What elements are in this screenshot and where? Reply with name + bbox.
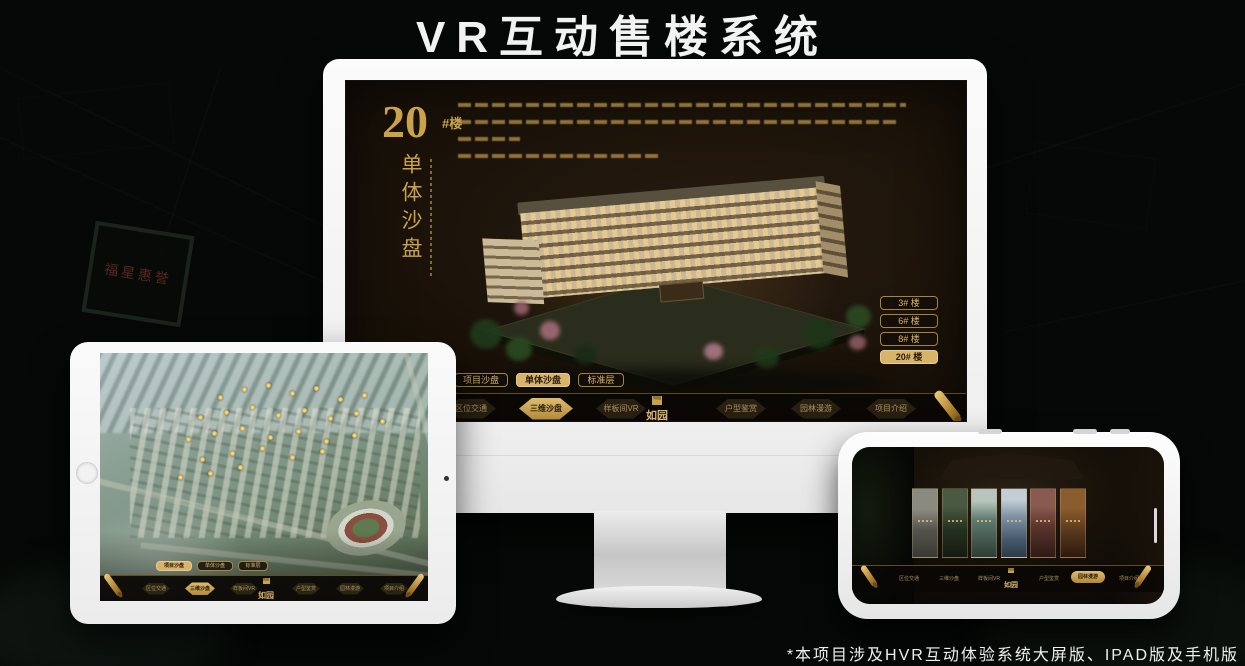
- scene-panel[interactable]: [971, 488, 997, 558]
- building-badge-dot: [290, 391, 295, 396]
- building-badge-dot: [268, 435, 273, 440]
- volume-button[interactable]: [978, 429, 1002, 434]
- building-badge-dot: [296, 429, 301, 434]
- scroll-icon[interactable]: [103, 573, 123, 598]
- tree: [704, 343, 723, 360]
- brand-seal-icon: 如园: [652, 396, 662, 405]
- building-badge-dot: [212, 431, 217, 436]
- building-badge-dot: [314, 386, 319, 391]
- building-badge-dot: [338, 397, 343, 402]
- building-badge-dot: [352, 433, 357, 438]
- scene-panel[interactable]: [1001, 488, 1027, 558]
- building-badge-dot: [266, 383, 271, 388]
- phone-screen: 区位交通 三维沙盘 样板间VR 如园 如园 户型鉴赏 园林漫游 项目介绍: [852, 447, 1164, 604]
- page-title: VR互动售楼系统: [0, 1, 1245, 65]
- tree: [754, 347, 779, 369]
- phone-nav-3d-sandtable[interactable]: 三维沙盘: [930, 575, 968, 582]
- building-badge-dot: [276, 413, 281, 418]
- scroll-icon[interactable]: [860, 564, 878, 587]
- tree: [514, 301, 529, 315]
- building-badge-dot: [208, 471, 213, 476]
- footnote: *本项目涉及HVR互动体验系统大屏版、IPAD版及手机版: [787, 641, 1239, 665]
- building-badge-dot: [328, 416, 333, 421]
- building-badge-dot: [354, 411, 359, 416]
- building-badge-dot: [218, 395, 223, 400]
- tablet-nav-garden-roam[interactable]: 园林漫游: [330, 585, 370, 592]
- floor-button-6[interactable]: 6# 楼: [880, 314, 938, 328]
- phone-nav-location-traffic[interactable]: 区位交通: [890, 575, 928, 582]
- phone-nav-garden-roam[interactable]: 园林漫游: [1068, 573, 1108, 580]
- nav-item-project-intro[interactable]: 项目介绍: [859, 403, 923, 414]
- tablet-brand-logo: 如园 如园: [254, 578, 278, 601]
- building-badge-dot: [320, 449, 325, 454]
- home-button[interactable]: [76, 462, 98, 484]
- tree: [506, 337, 532, 361]
- plaque-text: 福星惠誉: [103, 259, 173, 289]
- floor-button-3[interactable]: 3# 楼: [880, 296, 938, 310]
- tree: [802, 319, 835, 349]
- tablet-subtab-single-sandtable[interactable]: 单体沙盘: [197, 561, 233, 571]
- building-subtitle-vertical: 单体沙盘: [396, 153, 426, 265]
- tree: [540, 321, 560, 340]
- building-badge-dot: [198, 415, 203, 420]
- monitor-stand-base: [556, 586, 762, 608]
- building-badge-dot: [178, 475, 183, 480]
- building-badge-dot: [224, 410, 229, 415]
- scene-panel[interactable]: [1030, 488, 1056, 558]
- poster-canvas: 福星惠誉 VR互动售楼系统 20 #楼 单体沙盘: [0, 0, 1245, 666]
- home-indicator[interactable]: [1154, 508, 1157, 543]
- subtab-standard-floor[interactable]: 标准层: [578, 373, 624, 387]
- building-badge-dot: [302, 408, 307, 413]
- power-button[interactable]: [1110, 429, 1130, 434]
- scene-panel[interactable]: [912, 488, 938, 558]
- subtab-project-sandtable[interactable]: 项目沙盘: [454, 373, 508, 387]
- nav-item-3d-sandtable[interactable]: 三维沙盘: [514, 403, 578, 414]
- nav-item-unit-gallery[interactable]: 户型鉴赏: [709, 403, 773, 414]
- tablet-subtab-standard-floor[interactable]: 标准层: [238, 561, 268, 571]
- tree: [574, 345, 597, 365]
- building-badge-dot: [186, 437, 191, 442]
- tablet-nav-location-traffic[interactable]: 区位交通: [136, 585, 176, 592]
- tablet-subtab-project-sandtable[interactable]: 项目沙盘: [156, 561, 192, 571]
- building-badge-dot: [380, 419, 385, 424]
- scene-panel[interactable]: [942, 488, 968, 558]
- tablet-nav-3d-sandtable[interactable]: 三维沙盘: [180, 585, 220, 592]
- building-badge-dot: [260, 446, 265, 451]
- building-badge-dot: [250, 405, 255, 410]
- tree: [470, 319, 502, 349]
- scene-panel[interactable]: [1060, 488, 1086, 558]
- building-badge-dot: [290, 455, 295, 460]
- volume-button[interactable]: [1073, 429, 1097, 434]
- phone-nav-unit-gallery[interactable]: 户型鉴赏: [1030, 575, 1068, 582]
- subtab-single-sandtable[interactable]: 单体沙盘: [516, 373, 570, 387]
- tablet-screen: 项目沙盘 单体沙盘 标准层 区位交通 三维沙盘 样板间VR 如园 如园 户型鉴赏…: [100, 353, 428, 601]
- brand-seal-icon: 如园: [1008, 568, 1014, 573]
- brand-seal-icon: 如园: [263, 578, 270, 584]
- building-badge-dot: [230, 451, 235, 456]
- building-number: 20: [382, 99, 428, 145]
- building-badge-dot: [200, 457, 205, 462]
- tree: [846, 305, 871, 328]
- building-badge-dot: [242, 387, 247, 392]
- floor-button-8[interactable]: 8# 楼: [880, 332, 938, 346]
- monitor-stand-neck: [594, 511, 726, 591]
- scroll-icon[interactable]: [933, 389, 962, 422]
- gate-roof-silhouette: [940, 453, 1084, 479]
- building-badge-dot: [240, 426, 245, 431]
- camera-icon: [444, 476, 449, 481]
- tree: [849, 335, 866, 350]
- tablet-nav-unit-gallery[interactable]: 户型鉴赏: [286, 585, 326, 592]
- tablet-nav-bar: 区位交通 三维沙盘 样板间VR 如园 如园 户型鉴赏 园林漫游 项目介绍: [100, 575, 428, 601]
- headline-divider: [430, 159, 432, 279]
- building-badge-dot: [362, 393, 367, 398]
- phone-nav-bar: 区位交通 三维沙盘 样板间VR 如园 如园 户型鉴赏 园林漫游 项目介绍: [852, 565, 1164, 592]
- building-badge-dot: [324, 439, 329, 444]
- building-badge-dot: [238, 465, 243, 470]
- phone-brand-logo: 如园 如园: [1000, 568, 1022, 592]
- brand-logo: 如园 如园: [640, 396, 674, 422]
- background-plaque: 福星惠誉: [81, 221, 194, 328]
- building-render: [456, 173, 886, 391]
- floor-button-20[interactable]: 20# 楼: [880, 350, 938, 364]
- nav-item-garden-roam[interactable]: 园林漫游: [784, 403, 848, 414]
